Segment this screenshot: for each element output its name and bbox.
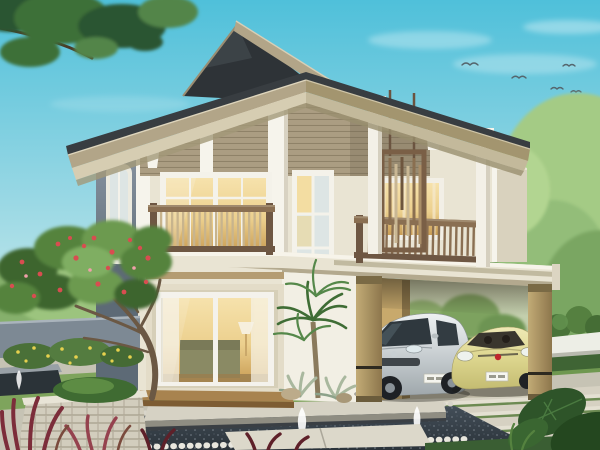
carport [354,264,560,402]
first-floor [134,262,356,408]
main-sliding-door [146,272,284,392]
sofa [180,350,240,378]
grille-badge [495,354,501,360]
headlight [457,351,473,361]
right-side-wall [495,170,527,262]
house-rendering-image [0,0,600,450]
rock [281,388,301,400]
carport-column-right [528,284,552,400]
carport-column-left [356,276,382,402]
wooden-deck [134,390,294,408]
architectural-rendering [0,0,600,450]
